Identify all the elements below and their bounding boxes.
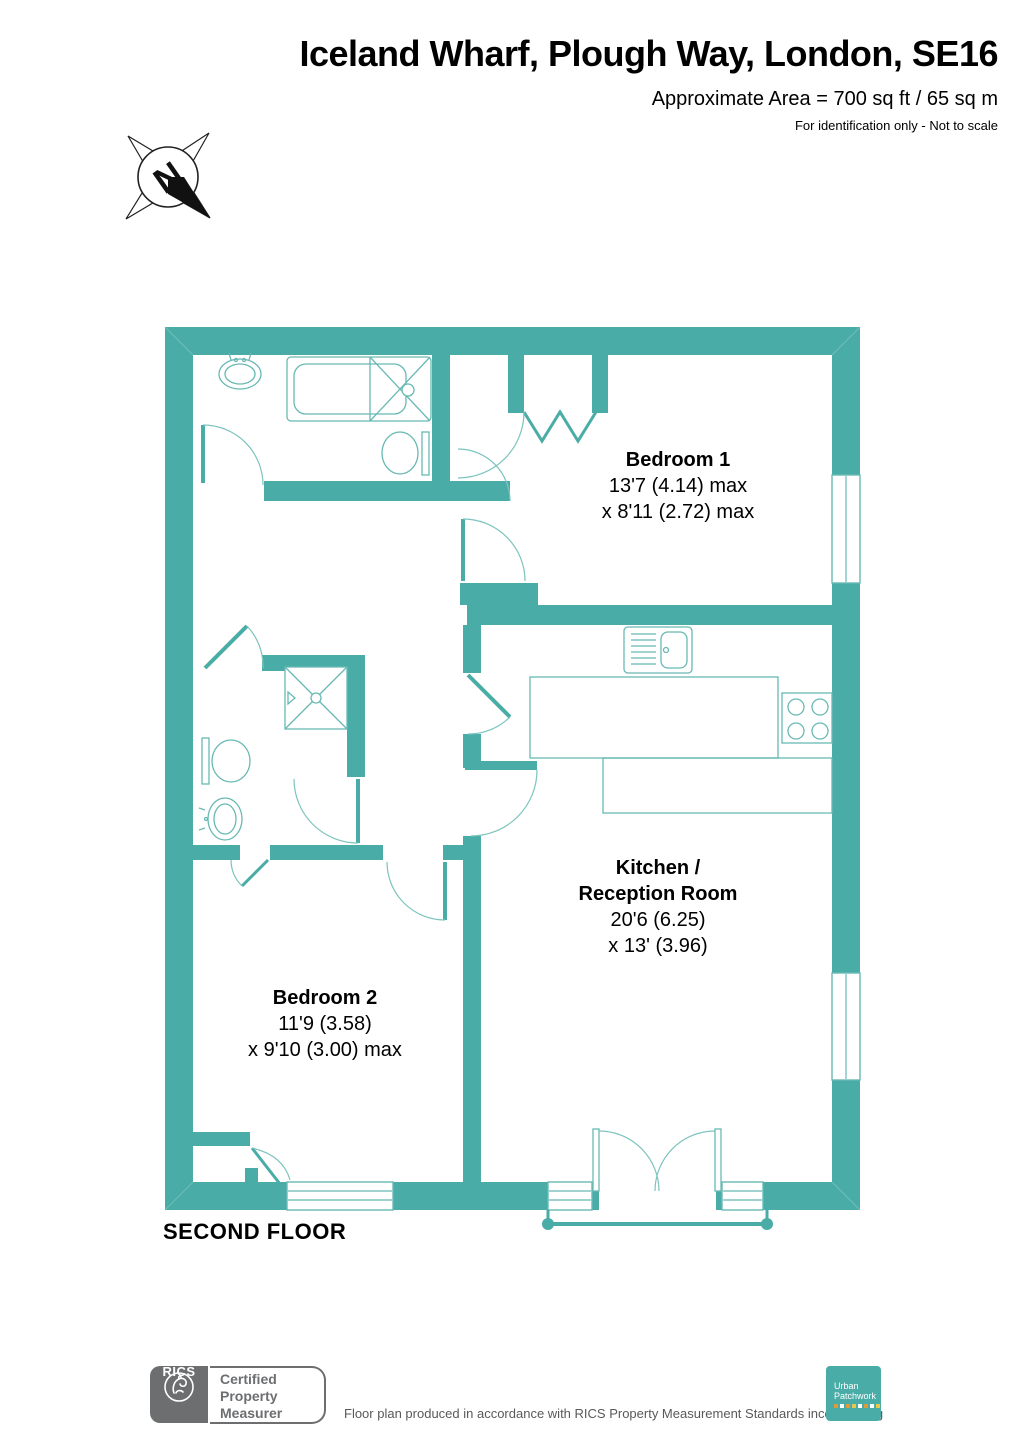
bedroom2-dim2: x 9'10 (3.00) max [205, 1037, 445, 1063]
hob-icon [782, 693, 832, 743]
toilet-icon [382, 432, 429, 475]
kitchen-dim2: x 13' (3.96) [536, 933, 780, 959]
kitchen-sink-icon [624, 627, 692, 673]
shower-icon [285, 667, 347, 729]
bedroom1-dim1: 13'7 (4.14) max [558, 473, 798, 499]
ensuite-toilet-icon [202, 738, 250, 784]
bedroom1-label: Bedroom 1 13'7 (4.14) max x 8'11 (2.72) … [558, 447, 798, 525]
bathroom-sink-icon [219, 353, 261, 389]
rics-logo: RICS [150, 1366, 208, 1423]
floor-label: SECOND FLOOR [163, 1219, 346, 1245]
page-title: Iceland Wharf, Plough Way, London, SE16 [299, 34, 998, 74]
kitchen-name-1: Kitchen / [536, 855, 780, 881]
compass-icon: N [126, 133, 210, 219]
floorplan-page: N [0, 0, 1024, 1448]
bedroom1-name: Bedroom 1 [558, 447, 798, 473]
ensuite-sink-icon [199, 798, 242, 840]
patch-square [870, 1404, 874, 1408]
area-text: Approximate Area = 700 sq ft / 65 sq m [299, 87, 998, 111]
patch-square [846, 1404, 850, 1408]
bathtub-icon [287, 357, 431, 421]
urban-line-1: Urban [834, 1381, 881, 1391]
floor-plan: N [0, 0, 1024, 1448]
bedroom2-name: Bedroom 2 [205, 985, 445, 1011]
rics-lion-icon [150, 1366, 208, 1406]
kitchen-dim1: 20'6 (6.25) [536, 907, 780, 933]
patch-square [858, 1404, 862, 1408]
bedroom2-label: Bedroom 2 11'9 (3.58) x 9'10 (3.00) max [205, 985, 445, 1063]
scale-note: For identification only - Not to scale [299, 118, 998, 134]
cert-line-1: Certified [220, 1371, 324, 1388]
bedroom2-dim1: 11'9 (3.58) [205, 1011, 445, 1037]
urban-patchwork-squares [826, 1401, 881, 1408]
patch-square [834, 1404, 838, 1408]
window [287, 475, 860, 1210]
doors [203, 412, 721, 1191]
cert-line-3: Measurer [220, 1405, 324, 1422]
urban-patchwork-logo: Urban Patchwork [826, 1366, 881, 1421]
cert-line-2: Property [220, 1388, 324, 1405]
kitchen-name-2: Reception Room [536, 881, 780, 907]
balcony-rail [542, 1210, 773, 1230]
disclaimer-text: Floor plan produced in accordance with R… [344, 1369, 883, 1448]
header: Iceland Wharf, Plough Way, London, SE16 … [299, 34, 998, 134]
patch-square [852, 1404, 856, 1408]
bedroom1-dim2: x 8'11 (2.72) max [558, 499, 798, 525]
patch-square [864, 1404, 868, 1408]
urban-line-2: Patchwork [834, 1391, 881, 1401]
certified-measurer-badge: Certified Property Measurer [210, 1366, 326, 1424]
patch-square [876, 1404, 880, 1408]
disclaimer-line-1: Floor plan produced in accordance with R… [344, 1405, 883, 1423]
patch-square [840, 1404, 844, 1408]
kitchen-label: Kitchen / Reception Room 20'6 (6.25) x 1… [536, 855, 780, 959]
